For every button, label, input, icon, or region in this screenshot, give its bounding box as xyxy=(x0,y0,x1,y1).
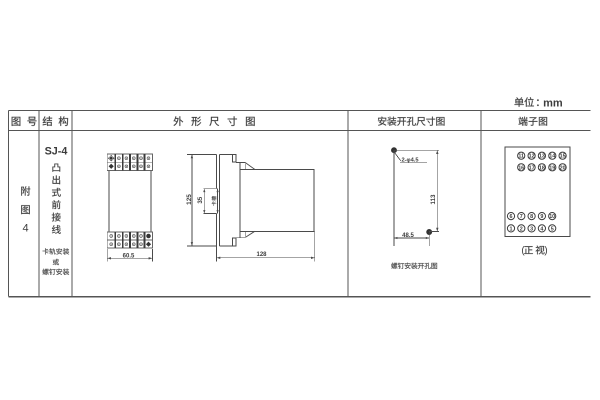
svg-text:9: 9 xyxy=(540,214,543,220)
svg-text:12: 12 xyxy=(529,154,535,160)
svg-text:2-φ4.5: 2-φ4.5 xyxy=(402,158,419,164)
svg-text:mm: mm xyxy=(543,98,563,110)
svg-text:10: 10 xyxy=(549,214,555,220)
svg-text:11: 11 xyxy=(518,154,524,160)
svg-text:7: 7 xyxy=(520,214,523,220)
svg-text:125: 125 xyxy=(186,194,193,205)
svg-text:20: 20 xyxy=(560,165,566,171)
svg-text:SJ-4: SJ-4 xyxy=(45,146,68,158)
svg-text:48.5: 48.5 xyxy=(402,233,414,239)
svg-text:): ) xyxy=(544,245,547,256)
svg-text:128: 128 xyxy=(256,252,267,258)
svg-text:16: 16 xyxy=(518,165,524,171)
svg-text:15: 15 xyxy=(560,154,566,160)
svg-text:19: 19 xyxy=(549,165,555,171)
svg-text:6: 6 xyxy=(510,214,513,220)
svg-text:35: 35 xyxy=(197,196,204,203)
svg-text:1: 1 xyxy=(510,226,513,232)
svg-text:5: 5 xyxy=(551,226,554,232)
svg-text:4: 4 xyxy=(540,226,543,232)
svg-text:4: 4 xyxy=(22,223,28,235)
svg-text:2: 2 xyxy=(520,226,523,232)
svg-text:14: 14 xyxy=(549,154,555,160)
svg-text:8: 8 xyxy=(530,214,533,220)
svg-text:17: 17 xyxy=(529,165,535,171)
svg-text:113: 113 xyxy=(430,194,437,205)
svg-text:13: 13 xyxy=(539,154,545,160)
svg-text:3: 3 xyxy=(530,226,533,232)
svg-text:60.5: 60.5 xyxy=(123,253,135,259)
svg-text:18: 18 xyxy=(539,165,545,171)
